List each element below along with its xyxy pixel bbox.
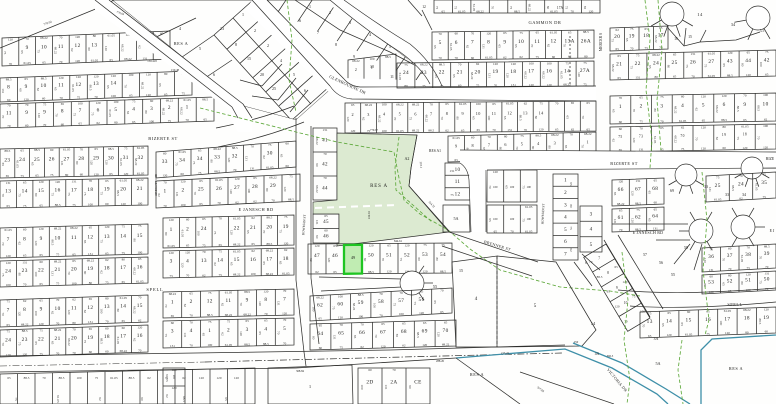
svg-text:50: 50 [764, 276, 770, 282]
svg-text:65: 65 [680, 323, 684, 327]
svg-text:60: 60 [471, 56, 475, 60]
svg-text:65: 65 [618, 54, 622, 58]
svg-text:60: 60 [42, 97, 46, 101]
svg-text:29: 29 [270, 183, 276, 189]
svg-text:62: 62 [681, 126, 685, 130]
svg-text:GAMMON DR: GAMMON DR [529, 20, 562, 25]
svg-text:120: 120 [17, 311, 21, 316]
svg-text:BIZERTE ST: BIZERTE ST [610, 161, 638, 166]
svg-text:131: 131 [635, 76, 640, 80]
svg-text:70: 70 [283, 289, 287, 293]
svg-text:100: 100 [88, 203, 93, 207]
svg-text:75: 75 [198, 171, 202, 175]
svg-text:120: 120 [6, 353, 11, 357]
svg-text:68.22: 68.22 [67, 338, 71, 346]
svg-text:68.22: 68.22 [233, 243, 241, 247]
svg-text:65: 65 [122, 319, 126, 323]
svg-text:75: 75 [56, 282, 60, 286]
svg-text:75: 75 [208, 320, 212, 324]
svg-text:22: 22 [38, 267, 44, 273]
svg-text:11: 11 [71, 235, 77, 241]
svg-text:60: 60 [319, 346, 323, 350]
svg-text:65: 65 [110, 58, 114, 62]
svg-text:65: 65 [503, 116, 507, 120]
svg-text:61.05: 61.05 [459, 102, 467, 106]
svg-text:80: 80 [93, 34, 97, 38]
svg-text:45: 45 [323, 219, 329, 225]
svg-text:68.22: 68.22 [54, 328, 62, 332]
svg-text:131: 131 [482, 44, 486, 49]
svg-text:120: 120 [437, 332, 441, 337]
svg-text:2: 2 [168, 105, 171, 111]
svg-text:120: 120 [315, 244, 320, 248]
svg-text:75: 75 [413, 302, 417, 306]
svg-text:65: 65 [661, 323, 665, 327]
svg-text:61.05: 61.05 [137, 172, 145, 176]
svg-text:75: 75 [759, 280, 763, 284]
svg-text:70: 70 [571, 9, 575, 13]
svg-text:65: 65 [280, 154, 284, 158]
svg-text:8: 8 [235, 42, 237, 47]
svg-text:70: 70 [271, 199, 275, 203]
svg-text:100: 100 [338, 294, 343, 298]
svg-text:68.22: 68.22 [180, 107, 184, 115]
svg-text:70: 70 [765, 265, 769, 269]
svg-text:75: 75 [703, 64, 707, 68]
svg-text:19: 19 [763, 315, 769, 321]
svg-text:68.22: 68.22 [743, 308, 751, 312]
svg-text:8: 8 [446, 111, 449, 116]
svg-text:100: 100 [100, 308, 104, 313]
svg-text:70: 70 [123, 85, 127, 89]
svg-text:8: 8 [23, 307, 26, 313]
svg-text:12: 12 [455, 191, 461, 197]
svg-text:12: 12 [207, 298, 213, 304]
svg-text:70: 70 [1, 313, 5, 317]
svg-text:368.84: 368.84 [296, 369, 305, 373]
svg-text:70: 70 [379, 313, 383, 317]
svg-text:70: 70 [138, 349, 142, 353]
svg-text:1: 1 [208, 328, 211, 334]
svg-text:70: 70 [239, 302, 243, 306]
svg-text:RES A: RES A [729, 366, 744, 371]
svg-text:37: 37 [727, 253, 733, 259]
svg-text:779.67: 779.67 [370, 128, 379, 132]
svg-text:120: 120 [137, 325, 142, 329]
svg-text:65: 65 [616, 47, 620, 51]
svg-text:22: 22 [38, 337, 44, 343]
svg-text:150.418: 150.418 [147, 59, 157, 63]
svg-text:62: 62 [17, 242, 21, 246]
svg-text:70: 70 [581, 115, 585, 119]
svg-text:75: 75 [182, 92, 186, 96]
svg-text:75: 75 [284, 215, 288, 219]
svg-text:88.5: 88.5 [416, 332, 420, 338]
svg-text:2: 2 [640, 104, 643, 110]
svg-text:17A: 17A [557, 6, 564, 10]
svg-text:57: 57 [398, 298, 404, 304]
svg-text:70: 70 [765, 287, 769, 291]
svg-text:61.05: 61.05 [485, 56, 493, 60]
svg-text:17: 17 [120, 265, 126, 271]
svg-text:88.5: 88.5 [267, 216, 273, 220]
svg-text:70: 70 [619, 228, 623, 232]
svg-text:150.48: 150.48 [171, 68, 180, 72]
svg-text:120: 120 [6, 261, 11, 265]
svg-text:68: 68 [652, 186, 658, 192]
svg-text:62: 62 [235, 200, 239, 204]
svg-text:120: 120 [8, 38, 13, 42]
svg-text:65: 65 [423, 321, 427, 325]
svg-text:131: 131 [170, 344, 175, 348]
svg-text:120: 120 [506, 73, 510, 78]
svg-text:75: 75 [105, 280, 109, 284]
svg-text:88.5: 88.5 [34, 148, 40, 152]
svg-text:65: 65 [555, 128, 559, 132]
svg-text:65: 65 [189, 291, 193, 295]
svg-text:75: 75 [583, 61, 587, 65]
svg-text:65: 65 [164, 92, 168, 96]
svg-text:70: 70 [1, 242, 5, 246]
svg-text:65: 65 [89, 297, 93, 301]
svg-text:61.05: 61.05 [685, 333, 693, 337]
svg-text:75: 75 [409, 117, 413, 121]
svg-text:46: 46 [323, 233, 329, 239]
svg-text:68.22: 68.22 [316, 295, 324, 299]
svg-text:13: 13 [91, 42, 97, 48]
svg-text:131: 131 [709, 268, 714, 272]
svg-text:60: 60 [654, 201, 658, 205]
svg-text:70: 70 [492, 128, 496, 132]
svg-text:19: 19 [104, 187, 110, 193]
svg-text:7: 7 [7, 308, 10, 314]
svg-text:75: 75 [630, 27, 634, 31]
svg-text:65: 65 [648, 65, 652, 69]
svg-text:75: 75 [681, 147, 685, 151]
svg-text:56: 56 [419, 297, 425, 303]
svg-text:65: 65 [351, 103, 355, 107]
svg-text:60: 60 [163, 151, 167, 155]
svg-text:75: 75 [648, 312, 652, 316]
svg-text:70: 70 [7, 124, 11, 128]
svg-text:75: 75 [3, 51, 7, 55]
svg-text:100: 100 [247, 188, 251, 193]
svg-text:9: 9 [43, 109, 46, 115]
svg-text:75: 75 [43, 103, 47, 107]
svg-text:15: 15 [38, 188, 44, 194]
svg-text:61.05: 61.05 [108, 109, 112, 117]
svg-text:120: 120 [486, 31, 491, 35]
svg-text:62: 62 [695, 108, 699, 112]
svg-text:14: 14 [22, 188, 28, 194]
svg-text:1: 1 [309, 4, 311, 9]
svg-text:80: 80 [65, 173, 69, 177]
svg-text:6: 6 [97, 108, 100, 114]
svg-text:24: 24 [403, 70, 409, 76]
svg-text:70: 70 [186, 118, 190, 122]
svg-text:70: 70 [471, 32, 475, 36]
svg-text:5: 5 [399, 112, 402, 117]
svg-text:75: 75 [208, 291, 212, 295]
svg-text:75: 75 [122, 251, 126, 255]
svg-text:75: 75 [583, 82, 587, 86]
svg-text:61.05: 61.05 [525, 229, 533, 233]
svg-text:131: 131 [332, 335, 336, 340]
svg-text:23: 23 [220, 26, 224, 31]
svg-text:15: 15 [459, 268, 463, 273]
svg-text:88.5: 88.5 [182, 396, 186, 402]
svg-text:80: 80 [728, 274, 732, 278]
svg-text:20: 20 [475, 69, 481, 75]
svg-text:3: 3 [150, 106, 153, 112]
svg-text:100: 100 [527, 217, 532, 221]
svg-text:9: 9 [455, 143, 458, 148]
svg-text:75: 75 [399, 258, 403, 262]
svg-text:100: 100 [251, 272, 256, 276]
svg-text:25: 25 [715, 183, 721, 189]
svg-text:88.5: 88.5 [244, 290, 250, 294]
svg-text:65: 65 [6, 174, 10, 178]
svg-text:60: 60 [19, 88, 23, 92]
svg-text:100: 100 [360, 385, 364, 390]
svg-text:120: 120 [96, 101, 101, 105]
svg-text:68.22: 68.22 [266, 249, 274, 253]
svg-text:70: 70 [94, 95, 98, 99]
svg-text:52: 52 [404, 252, 410, 258]
svg-text:100: 100 [111, 94, 116, 98]
svg-text:4: 4 [369, 32, 371, 37]
svg-text:100: 100 [197, 231, 201, 236]
svg-text:88.5: 88.5 [514, 9, 520, 13]
svg-text:12: 12 [87, 235, 93, 241]
svg-text:61.05: 61.05 [708, 52, 716, 56]
svg-text:CE: CE [414, 379, 422, 385]
svg-text:20: 20 [266, 225, 272, 231]
svg-text:75: 75 [422, 84, 426, 88]
svg-text:70: 70 [233, 168, 237, 172]
svg-text:66: 66 [618, 187, 624, 193]
svg-text:75: 75 [435, 6, 439, 10]
svg-text:70: 70 [641, 324, 645, 328]
svg-text:75: 75 [202, 243, 206, 247]
svg-text:131: 131 [507, 128, 512, 132]
svg-text:120: 120 [346, 116, 350, 121]
svg-text:120: 120 [180, 262, 184, 267]
svg-text:60: 60 [87, 47, 91, 51]
svg-text:68.22: 68.22 [476, 9, 484, 13]
svg-text:75: 75 [539, 101, 543, 105]
svg-text:120: 120 [722, 94, 727, 98]
svg-text:62: 62 [764, 118, 768, 122]
svg-text:60: 60 [23, 227, 27, 231]
svg-text:18: 18 [283, 256, 289, 262]
svg-text:70: 70 [555, 101, 559, 105]
svg-text:18: 18 [643, 33, 649, 39]
svg-text:88.5: 88.5 [597, 275, 603, 279]
svg-text:65: 65 [83, 240, 87, 244]
svg-text:65: 65 [21, 149, 25, 153]
svg-text:18: 18 [87, 187, 93, 193]
svg-text:19: 19 [722, 133, 726, 137]
svg-text:120: 120 [263, 290, 268, 294]
svg-text:67: 67 [635, 187, 641, 193]
svg-text:8: 8 [7, 84, 10, 90]
svg-text:70: 70 [7, 104, 11, 108]
svg-text:53: 53 [708, 279, 714, 285]
svg-text:70: 70 [105, 320, 109, 324]
svg-text:120: 120 [39, 180, 44, 184]
svg-text:68.22: 68.22 [133, 306, 137, 314]
svg-text:33: 33 [725, 192, 729, 197]
svg-text:75: 75 [454, 6, 458, 10]
svg-text:120: 120 [746, 273, 751, 277]
svg-text:14: 14 [539, 110, 544, 115]
svg-text:70: 70 [515, 146, 519, 150]
svg-text:75: 75 [450, 193, 454, 197]
svg-text:65: 65 [253, 176, 257, 180]
svg-text:19: 19 [87, 266, 93, 272]
svg-text:61.05: 61.05 [110, 376, 118, 380]
svg-text:69: 69 [670, 188, 674, 193]
svg-text:62: 62 [315, 270, 319, 274]
svg-text:13: 13 [104, 234, 110, 240]
svg-text:60: 60 [105, 326, 109, 330]
svg-text:844.61: 844.61 [394, 239, 403, 243]
svg-text:68.22: 68.22 [365, 103, 373, 107]
svg-text:70: 70 [660, 119, 664, 123]
svg-text:70: 70 [487, 135, 491, 139]
svg-text:65: 65 [571, 101, 575, 105]
svg-text:61.05: 61.05 [23, 61, 31, 65]
svg-text:88.5: 88.5 [24, 376, 30, 380]
svg-text:75: 75 [219, 250, 223, 254]
svg-text:60: 60 [337, 301, 343, 307]
svg-text:60: 60 [546, 6, 550, 10]
svg-text:SPELL: SPELL [727, 302, 742, 307]
svg-text:65: 65 [477, 128, 481, 132]
svg-text:80: 80 [83, 271, 87, 275]
svg-text:70: 70 [1, 343, 5, 347]
svg-text:5A: 5A [453, 216, 458, 221]
svg-text:120: 120 [34, 240, 38, 245]
svg-text:65: 65 [105, 251, 109, 255]
svg-text:4A: 4A [595, 352, 600, 356]
svg-text:120: 120 [76, 75, 81, 79]
svg-text:56: 56 [659, 260, 663, 265]
svg-text:SPELL: SPELL [146, 287, 163, 292]
svg-text:60: 60 [417, 258, 421, 262]
svg-text:88.5: 88.5 [757, 105, 761, 111]
svg-text:60: 60 [181, 172, 185, 176]
svg-text:120: 120 [162, 174, 167, 178]
svg-text:68.22: 68.22 [21, 323, 29, 327]
svg-text:70: 70 [443, 328, 449, 334]
svg-text:120: 120 [338, 316, 343, 320]
svg-text:16: 16 [705, 317, 711, 323]
svg-text:20: 20 [71, 335, 77, 341]
svg-text:21: 21 [137, 186, 143, 192]
svg-text:65: 65 [625, 38, 629, 42]
svg-text:14: 14 [697, 12, 703, 17]
svg-text:1: 1 [186, 105, 189, 111]
svg-text:10: 10 [624, 301, 628, 305]
svg-text:19: 19 [87, 335, 93, 341]
svg-text:55: 55 [433, 284, 437, 289]
svg-text:61.05: 61.05 [506, 102, 514, 106]
svg-text:80: 80 [34, 193, 38, 197]
svg-text:360.3: 360.3 [607, 354, 614, 358]
svg-text:131: 131 [6, 181, 11, 185]
svg-text:65: 65 [505, 185, 509, 189]
svg-text:36: 36 [708, 254, 714, 260]
svg-text:131: 131 [315, 220, 319, 225]
svg-text:23: 23 [22, 268, 28, 274]
svg-text:1: 1 [564, 178, 567, 184]
svg-text:4: 4 [280, 58, 282, 63]
svg-text:10: 10 [55, 235, 61, 241]
svg-text:131: 131 [1, 88, 5, 93]
svg-text:68.22: 68.22 [412, 102, 420, 106]
svg-text:65: 65 [444, 320, 448, 324]
svg-text:9: 9 [616, 286, 618, 290]
svg-text:120: 120 [727, 51, 732, 55]
svg-text:120: 120 [764, 307, 769, 311]
svg-text:61.05: 61.05 [398, 73, 402, 81]
svg-text:4: 4 [179, 26, 181, 31]
svg-text:131: 131 [72, 180, 77, 184]
svg-text:65: 65 [440, 310, 444, 314]
svg-text:131: 131 [245, 156, 249, 161]
svg-text:65: 65 [445, 102, 449, 106]
svg-text:60: 60 [728, 247, 732, 251]
svg-text:75: 75 [14, 397, 18, 401]
svg-text:65: 65 [433, 45, 437, 49]
svg-text:61.05: 61.05 [120, 296, 128, 300]
svg-text:75: 75 [706, 332, 710, 336]
svg-text:65: 65 [471, 116, 475, 120]
svg-text:131: 131 [636, 179, 641, 183]
svg-text:61.05: 61.05 [449, 43, 453, 51]
svg-text:3: 3 [246, 327, 249, 333]
svg-text:70: 70 [189, 320, 193, 324]
svg-text:68.22: 68.22 [442, 343, 450, 347]
svg-text:100: 100 [137, 202, 142, 206]
svg-text:120: 120 [67, 310, 71, 315]
svg-text:70: 70 [563, 44, 567, 48]
svg-text:65: 65 [333, 244, 337, 248]
svg-text:6: 6 [304, 88, 306, 93]
svg-text:68.22: 68.22 [213, 147, 221, 151]
svg-text:3: 3 [590, 211, 593, 217]
svg-text:65: 65 [202, 333, 206, 337]
svg-text:5: 5 [564, 227, 567, 233]
svg-text:88.5: 88.5 [764, 245, 770, 249]
svg-text:80: 80 [531, 146, 535, 150]
svg-text:100: 100 [527, 185, 532, 189]
svg-text:65: 65 [106, 85, 110, 89]
svg-text:65: 65 [492, 102, 496, 106]
svg-text:15: 15 [137, 303, 143, 309]
svg-text:68.22: 68.22 [162, 108, 166, 116]
svg-text:68.22: 68.22 [654, 35, 658, 43]
svg-text:16: 16 [674, 37, 678, 41]
svg-text:17: 17 [724, 316, 730, 322]
svg-text:68.22: 68.22 [551, 133, 559, 137]
svg-text:61.05: 61.05 [167, 244, 175, 248]
svg-text:88.5: 88.5 [518, 115, 522, 121]
svg-text:13: 13 [104, 304, 110, 310]
svg-text:65: 65 [72, 252, 76, 256]
